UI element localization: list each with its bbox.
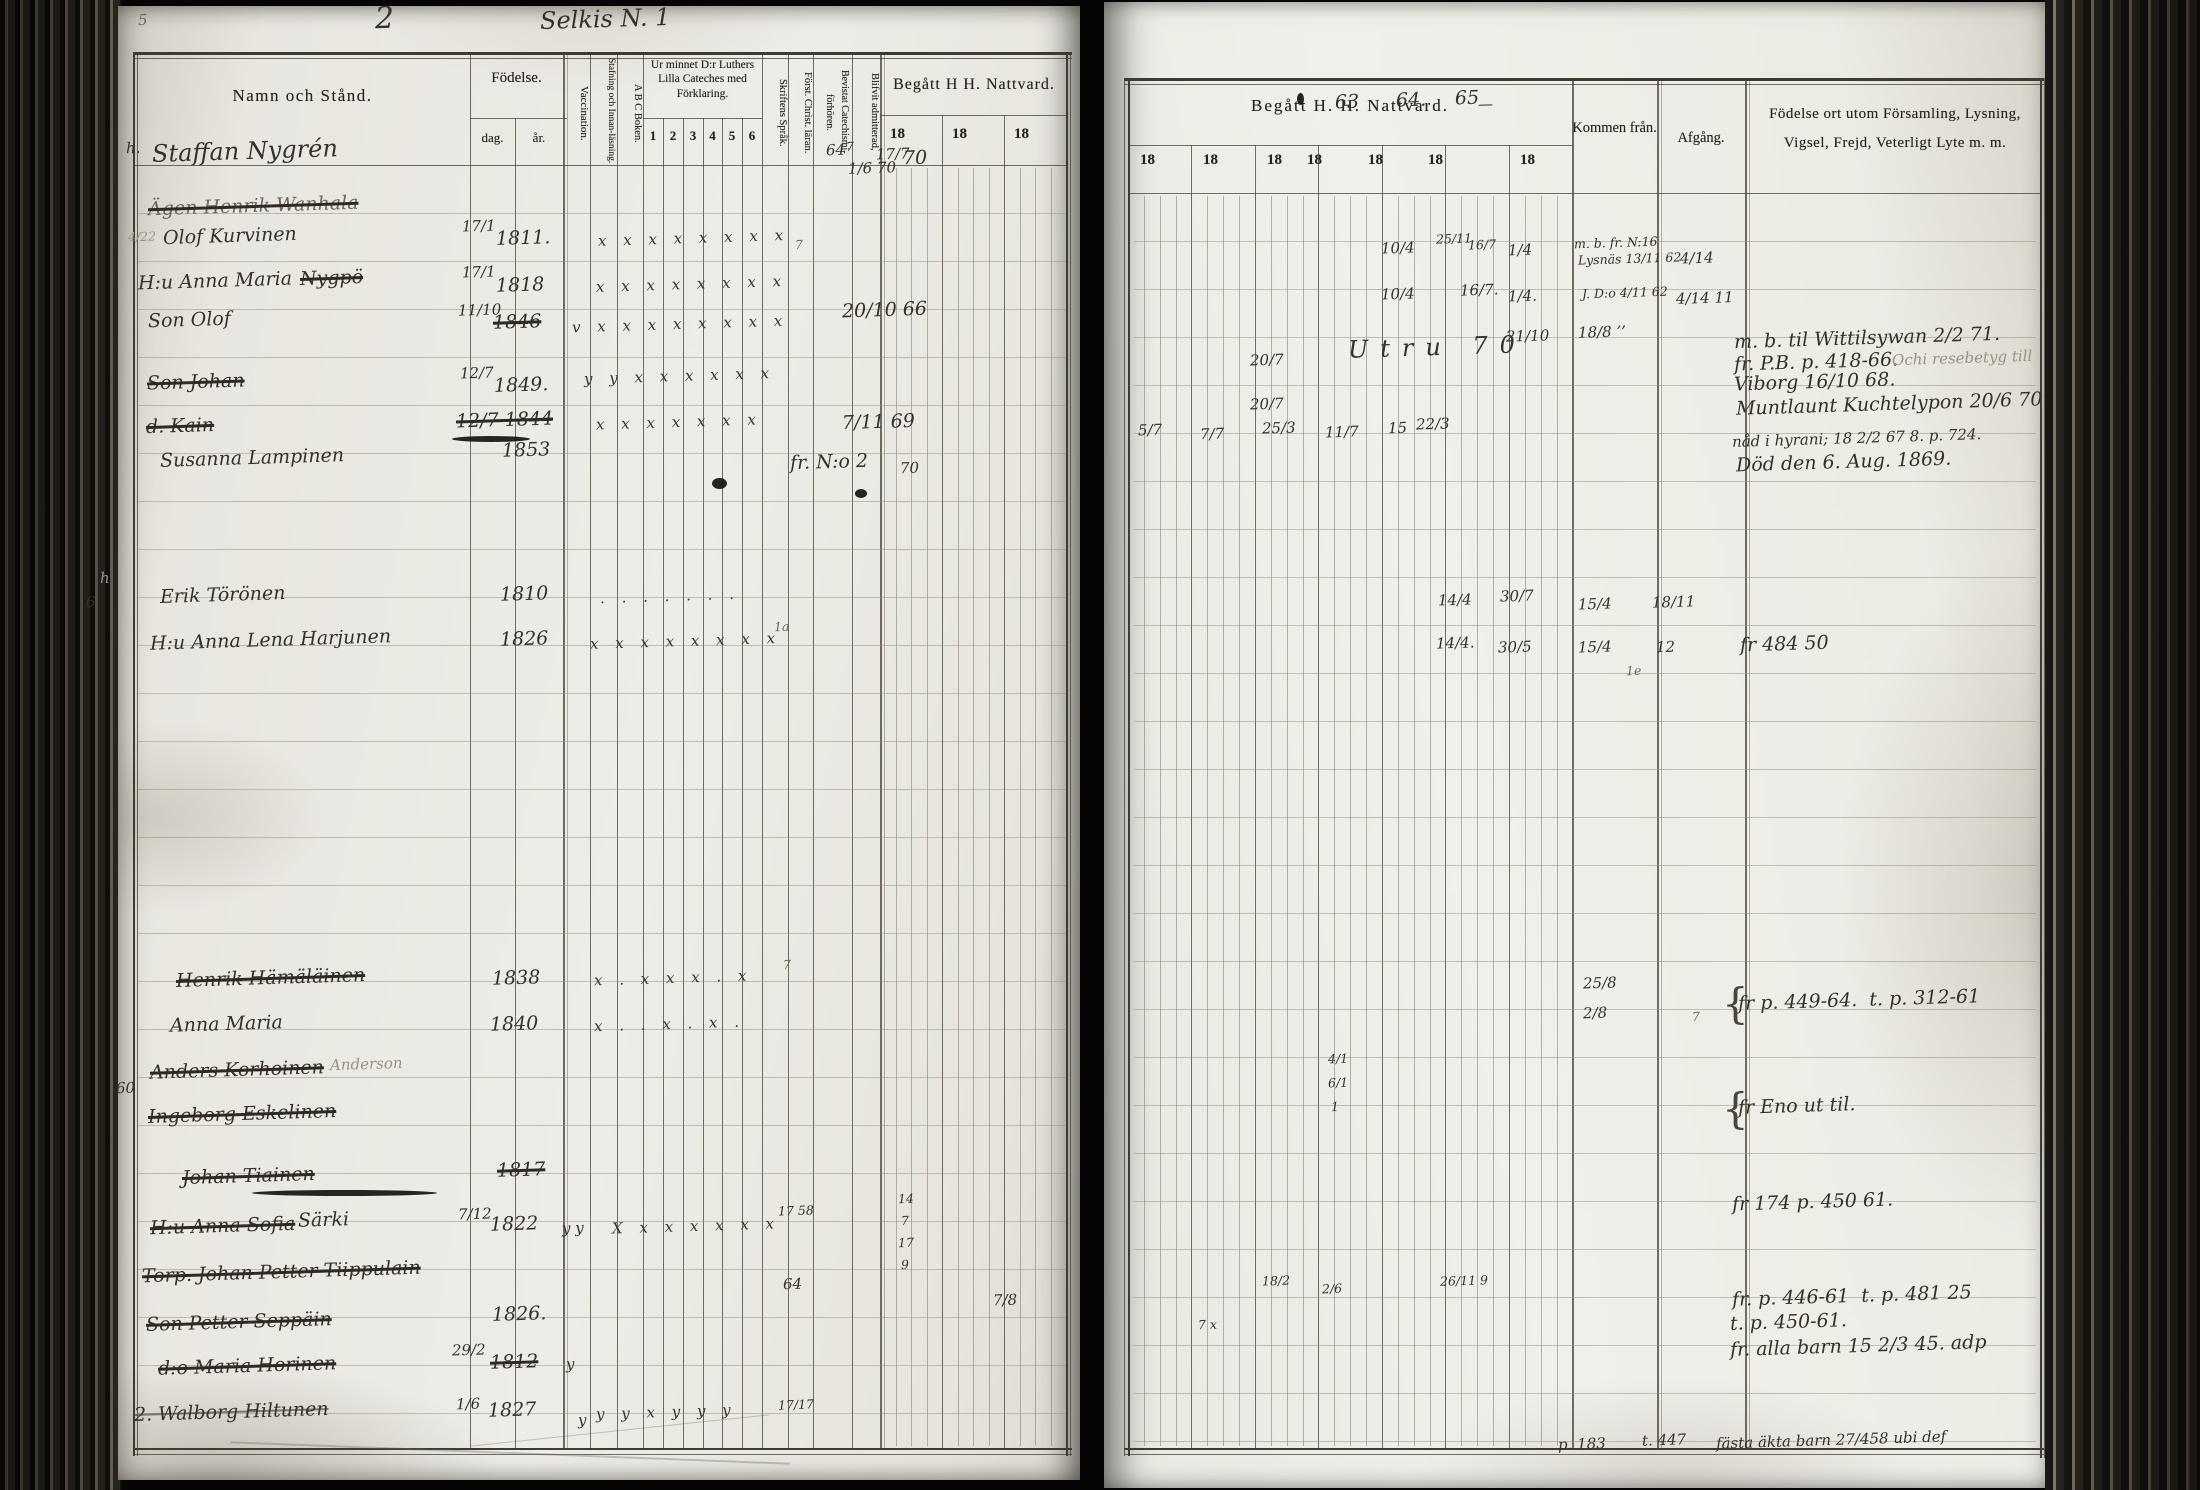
handwritten-entry: Susanna Lampinen [160,445,345,473]
handwritten-entry: 25/11 [1436,231,1472,246]
handwritten-entry: d:o Maria Horinen [158,1353,337,1380]
handwritten-entry: 1826 [500,628,549,651]
handwritten-entry: 7 [1692,1010,1700,1025]
handwritten-entry: 18/11 [1652,593,1696,612]
handwritten-entry: 15/4 [1578,638,1612,656]
handwritten-entry: fr 484 50 [1740,633,1829,658]
handwritten-entry: 21/10 [1506,327,1550,346]
handwritten-entry: Utru 70 [1348,331,1528,364]
handwritten-entry: Olof Kurvinen [163,224,297,250]
handwritten-entry: 4/14 [1680,249,1714,267]
handwritten-entry: 29/2 [452,1341,486,1359]
ink-blot [855,489,867,498]
handwritten-entry: v x x x x x x x x [572,313,784,337]
handwritten-entry: 2 [374,2,394,37]
handwritten-entry: 18/8 ’’ [1578,323,1627,342]
handwritten-entry: 5 [138,12,148,30]
handwritten-entry: 11/7 [1325,423,1359,441]
handwritten-entry: 60 [116,1080,136,1098]
handwritten-entry: 1853 [502,439,551,462]
handwritten-entry: 65 [1455,88,1480,111]
handwritten-entry: x x x x x x x [596,411,757,433]
handwritten-entry: Död den 6. Aug. 1869. [1736,449,1952,478]
handwritten-entry: 1826. [492,1303,547,1327]
handwritten-entry: Son Olof [148,309,232,333]
handwritten-entry: 14/4. [1436,634,1475,652]
handwritten-entry: 16/7 [1468,238,1497,253]
handwritten-entry: x . . x . x . [594,1014,741,1036]
handwritten-entry: fästa äkta barn 27/458 ubi def [1716,1428,1947,1452]
ink-blot [452,436,530,442]
handwritten-entry: 1811. [496,227,551,251]
handwritten-entry: 17/17 [778,1397,814,1412]
handwritten-entry: 1/4. [1508,288,1537,306]
handwritten-entry: 7 [846,140,854,155]
handwritten-entry: y [566,1356,575,1374]
handwritten-entry: Henrik Hämäläinen [176,965,366,993]
handwritten-entry: 20/7 [1250,395,1284,413]
handwritten-entry: 30/5 [1498,638,1532,656]
handwritten-entry: 17 58 [778,1203,814,1218]
handwritten-entry: fr Eno ut til. [1738,1094,1856,1120]
handwritten-entry: t. 447 [1642,1431,1687,1450]
handwritten-entry: H:u Anna Maria [138,269,293,296]
handwritten-entry: fr. N:o 2 [790,451,869,475]
handwritten-entry: 1838 [492,967,541,990]
handwritten-entry: Son Johan [147,370,245,395]
handwritten-entry: 30/7 [1500,587,1534,605]
handwritten-entry: 4/1 [1328,1052,1349,1067]
handwritten-entry: Ägen Henrik Wanhala [148,193,359,221]
scanned-parish-register: Namn och Stånd. Födelse. dag. år. Vaccin… [0,0,2200,1490]
handwritten-entry: 26/11 9 [1440,1273,1488,1289]
handwritten-entry: 9 [901,1258,909,1273]
handwritten-entry: Viborg 16/10 68. [1734,369,1896,396]
handwriting-layer: 52Selkis N. 1h.Staffan NygrénÄgen Henrik… [0,0,2200,1490]
handwritten-entry: x . x x x . x [594,968,748,990]
handwritten-entry: 2. Walborg Hiltunen [134,1399,329,1427]
handwritten-entry: Johan Tiainen [182,1164,315,1190]
handwritten-entry: . . . . . . . [600,586,735,607]
handwritten-entry: 10/4 [1381,285,1415,303]
handwritten-entry: 70 [903,148,928,171]
handwritten-entry: 7 [795,238,803,253]
handwritten-entry: 70 [900,460,920,478]
handwritten-entry: h [100,570,110,588]
handwritten-entry: Ingeborg Eskelinen [148,1101,337,1129]
handwritten-entry: 7/12 [458,1205,492,1223]
handwritten-entry: 63 [1335,92,1360,115]
handwritten-entry: h. [126,140,141,158]
handwritten-entry: 1818 [496,274,545,297]
handwritten-entry: 17 [898,1236,914,1251]
handwritten-entry: fr 174 p. 450 61. [1732,1189,1894,1216]
handwritten-entry: 1827 [488,1399,537,1422]
handwritten-entry: 17/1 [462,263,496,281]
ink-blot [252,1190,437,1196]
handwritten-entry: 25/3 [1262,419,1296,437]
handwritten-entry: y y x x x x x x [584,365,771,388]
handwritten-entry: Selkis N. 1 [540,4,671,36]
handwritten-entry: 7/11 69 [842,411,916,435]
ink-blot [712,478,727,489]
handwritten-entry: 7 [783,958,791,973]
handwritten-entry: 5/7 [1138,422,1163,440]
handwritten-entry: y y x y y y [596,1402,732,1424]
handwritten-entry: 12 [1656,639,1676,657]
handwritten-entry: 1849. [494,374,549,398]
handwritten-entry: 1/6 [456,1396,481,1414]
handwritten-entry: 20/7 [1250,351,1284,369]
handwritten-entry: H:u Anna Lena Harjunen [150,626,392,655]
handwritten-entry: 64. [1396,90,1427,113]
handwritten-entry: Nygpö [300,267,364,291]
handwritten-entry: 22/3 [1416,415,1450,433]
handwritten-entry: 4/14 11 [1676,289,1734,308]
handwritten-entry: fr p. 449-64. t. p. 312-61 [1738,986,1981,1015]
handwritten-entry: t. p. 450-61. [1730,1310,1847,1336]
handwritten-entry: y [578,1412,587,1430]
handwritten-entry: Lysnäs 13/11 62 [1578,250,1682,268]
handwritten-entry: fr. p. 446-61 t. p. 481 25 [1732,1282,1972,1311]
handwritten-entry: Torp. Johan Petter Tiippulain [142,1258,421,1289]
handwritten-entry: 20/10 66 [842,299,928,324]
handwritten-entry: J. D:o 4/11 62 [1582,285,1668,302]
handwritten-entry: 14/4 [1438,591,1472,609]
handwritten-entry: 16/7. [1460,281,1499,299]
handwritten-entry: 12/7 1844 [456,408,554,433]
handwritten-entry: Särki [298,1209,350,1232]
handwritten-entry: fr. alla barn 15 2/3 45. adp [1730,1332,1987,1362]
handwritten-entry: 64 [783,1276,803,1294]
handwritten-entry: 1822 [490,1213,539,1236]
handwritten-entry: Anna Maria [170,1012,283,1037]
handwritten-entry: x x x x x x x x [598,227,785,250]
handwritten-entry: 2/6 [1322,1282,1343,1297]
handwritten-entry: 6 [86,594,96,612]
handwritten-entry: 64 [826,142,846,160]
handwritten-entry: 1812 [490,1351,539,1374]
handwritten-entry: X x x x x x x [612,1215,776,1237]
handwritten-entry: Anders Korhoinen [150,1057,325,1084]
ink-blot [1297,93,1304,105]
handwritten-entry: 10/4 [1381,239,1415,257]
handwritten-entry: 7/7 [1200,426,1225,444]
handwritten-entry: 4/22 [128,230,157,245]
handwritten-entry: 6/1 [1328,1076,1349,1091]
handwritten-entry: 18/2 [1262,1274,1291,1289]
handwritten-entry: 2/8 [1583,1005,1608,1023]
handwritten-entry: 1810 [500,583,549,606]
handwritten-entry: p. 183 [1558,1435,1606,1454]
handwritten-entry: y y [562,1220,584,1238]
handwritten-entry: 1817 [497,1159,546,1182]
handwritten-entry: Staffan Nygrén [152,135,339,168]
handwritten-entry: H:u Anna Sofia [150,1214,296,1240]
handwritten-entry: 7/8 [993,1292,1018,1310]
handwritten-entry: 25/8 [1583,974,1617,992]
handwritten-entry: 7 x [1198,1318,1217,1333]
handwritten-entry: 1840 [490,1013,539,1036]
handwritten-entry: Son Petter Seppäin [146,1309,332,1337]
handwritten-entry: Ochi resebetyg till [1892,348,2033,370]
handwritten-entry: 14 [898,1192,914,1207]
handwritten-entry: m. b. fr. N:16 [1574,235,1658,252]
handwritten-entry: 1e [1626,664,1642,679]
handwritten-entry: Anderson [330,1055,403,1075]
handwritten-entry: 12/7 [460,364,494,382]
handwritten-entry: 1846 [493,311,542,334]
handwritten-entry: d. Kain [146,415,215,439]
handwritten-entry: 15/4 [1578,595,1612,613]
handwritten-entry: 1a [774,620,790,635]
handwritten-entry: 1/4 [1508,242,1533,260]
handwritten-entry: 15 [1388,420,1408,438]
handwritten-entry: Erik Törönen [160,583,286,609]
handwritten-entry: 7 [901,1214,909,1229]
handwritten-entry: 1 [1331,1100,1339,1115]
handwritten-entry: x x x x x x x x [590,630,777,653]
handwritten-entry: 17/1 [462,217,496,235]
handwritten-entry: — [1478,96,1494,114]
handwritten-entry: x x x x x x x x [596,273,783,296]
